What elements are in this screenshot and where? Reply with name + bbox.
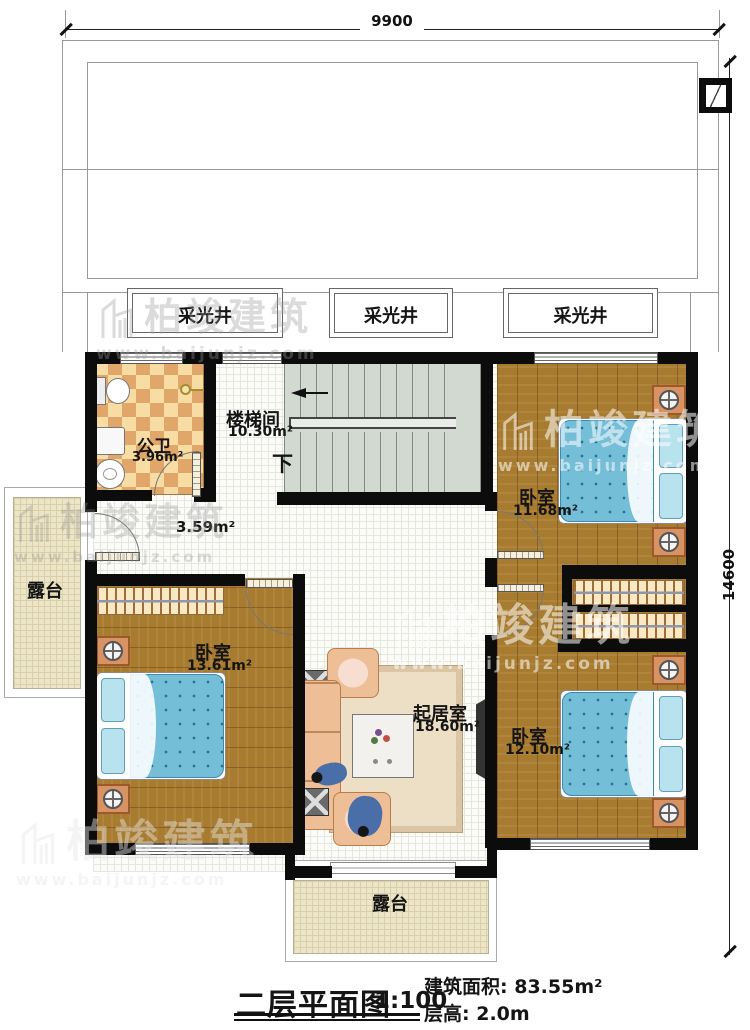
wall-mid-vertical [485,635,497,848]
stair-treads-upper [284,360,456,420]
building-area-label: 建筑面积: [424,976,508,998]
balcony-sliding-door [330,862,456,874]
door-leaf-bedroom-left [246,579,293,588]
window-bottom-bedroom-left [135,843,250,855]
bed-sheet-fold [130,674,156,778]
title-underline-2 [234,1019,420,1021]
roof-eave-line-left-outer [62,293,63,352]
wall-stair-right [481,352,493,492]
bathroom-sink [95,459,125,489]
wall-bedroom-left-top [85,574,245,586]
dim-width-label: 9900 [360,12,424,30]
lamp-icon [659,532,679,552]
nightstand [96,636,130,666]
wall-living-bottom-right [487,846,497,878]
lamp-icon [659,660,679,680]
wall-bottom-left [85,843,135,855]
washing-machine [95,427,125,455]
roof-eave-line-right-inner [690,293,691,352]
stair-direction-arrow [291,388,306,398]
side-table [301,788,329,816]
lamp-icon [103,641,123,661]
dim-line-right [729,58,730,955]
watermark-url: www.baijunjz.com [16,870,258,889]
flower-decor [375,729,382,736]
terrace-bottom-label: 露台 [372,890,408,916]
stairwell-area-label: 10.30m² [228,424,293,440]
bed-sheet-fold [627,692,653,796]
terrace-left-label: 露台 [27,577,63,603]
bed-sheet-fold [627,420,653,522]
dim-height-label: 14600 [720,535,740,615]
wall-top [282,352,534,364]
chimney-flue [706,85,726,107]
lamp-icon [659,803,679,823]
roof-eave-line-left-inner [87,293,88,352]
light-well-box-2: 采光井 [329,288,453,338]
stair-arrow-tail [306,392,328,394]
stair-treads-lower [284,432,460,494]
window-top-bedroom [534,352,658,364]
dim-ext-left [65,10,66,38]
nightstand [96,784,130,814]
floor-height-value: 2.0m [476,1003,529,1025]
towel-bar [191,389,205,391]
bed-pillow [659,696,683,740]
light-well-label-3: 采光井 [504,302,657,328]
wall-living-bottom [285,866,332,878]
closet-strip [573,613,685,639]
lamp-icon [659,390,679,410]
wall-stair-bottom [277,492,497,505]
wall-right [686,352,698,850]
building-area-row: 建筑面积: 83.55m² [424,972,602,999]
roof-ridge-line [62,169,719,170]
towel-ring [180,384,191,395]
table-item [373,759,378,764]
light-well-box-3: 采光井 [503,288,658,338]
bed-bottom-right [560,690,688,798]
wall-bathroom-right [204,352,216,497]
nightstand [652,527,686,557]
living-room-area-label: 18.60m² [415,719,480,735]
light-well-label-1: 采光井 [128,302,282,328]
dim-ext-right [719,10,720,38]
flower-decor [371,737,378,744]
light-well-box-1: 采光井 [127,288,283,338]
toilet-bowl [106,378,130,404]
bed-pillow [101,678,125,722]
closet-strip [96,587,224,615]
building-area-value: 83.55m² [514,976,602,998]
light-well-label-2: 采光井 [330,302,452,328]
stair-handrail [289,417,456,429]
bedroom-top-right-area-label: 11.68m² [513,503,578,519]
wall-top [183,352,222,364]
toilet-tank [96,377,106,405]
wall-bedroom-left-right [293,574,305,855]
bed-pillow [659,746,683,792]
lamp-icon [103,789,123,809]
title-underline-1 [234,1013,420,1016]
floor-height-row: 层高: 2.0m [424,999,530,1026]
wall-closet-top [572,565,686,579]
wall-mid-vertical [485,497,497,511]
wall-bottom-left [250,843,305,855]
stair-down-label: 下 [272,448,293,478]
floor-plan-canvas: 9900 14600 采光井 采光井 采光井 露台 露台 [0,0,750,1030]
nightstand [652,385,686,415]
flower-decor [383,735,390,742]
bedroom-left-area-label: 13.61m² [187,658,252,674]
window-top-hall [222,352,282,364]
bed-pillow [659,424,683,468]
coffee-table [352,714,414,778]
plan-title: 二层平面图 [236,980,391,1024]
wall-closet-bottom [558,639,686,652]
nightstand [652,655,686,685]
wall-left [85,560,97,855]
table-item [387,759,392,764]
wall-left [85,352,97,512]
window-bottom-bedroom-right [530,838,650,850]
wall-closet-mid [572,605,686,612]
floor-height-label: 层高: [424,1003,470,1025]
roof-eave-line-right-outer [718,293,719,352]
bathroom-area-label: 3.96m² [132,450,183,465]
dim-tick-right-top [723,55,736,68]
person-head [357,825,369,837]
closet-strip [573,580,685,605]
bedroom-bottom-right-area-label: 12.10m² [505,742,570,758]
window-top-bathroom [120,352,183,364]
bed-pillow [101,728,125,774]
dim-tick-right-bottom [723,945,736,958]
sink-basin [103,468,117,480]
roof-inner-outline [87,62,698,279]
wall-bathroom-bottom [93,490,152,501]
nightstand [652,798,686,828]
brand-logo-icon [16,818,60,866]
wall-bottom-right [650,838,698,850]
bed-left [96,672,226,780]
wall-mid-vertical [485,558,497,587]
bed-pillow [659,473,683,519]
hallway-area-label: 3.59m² [176,518,235,536]
